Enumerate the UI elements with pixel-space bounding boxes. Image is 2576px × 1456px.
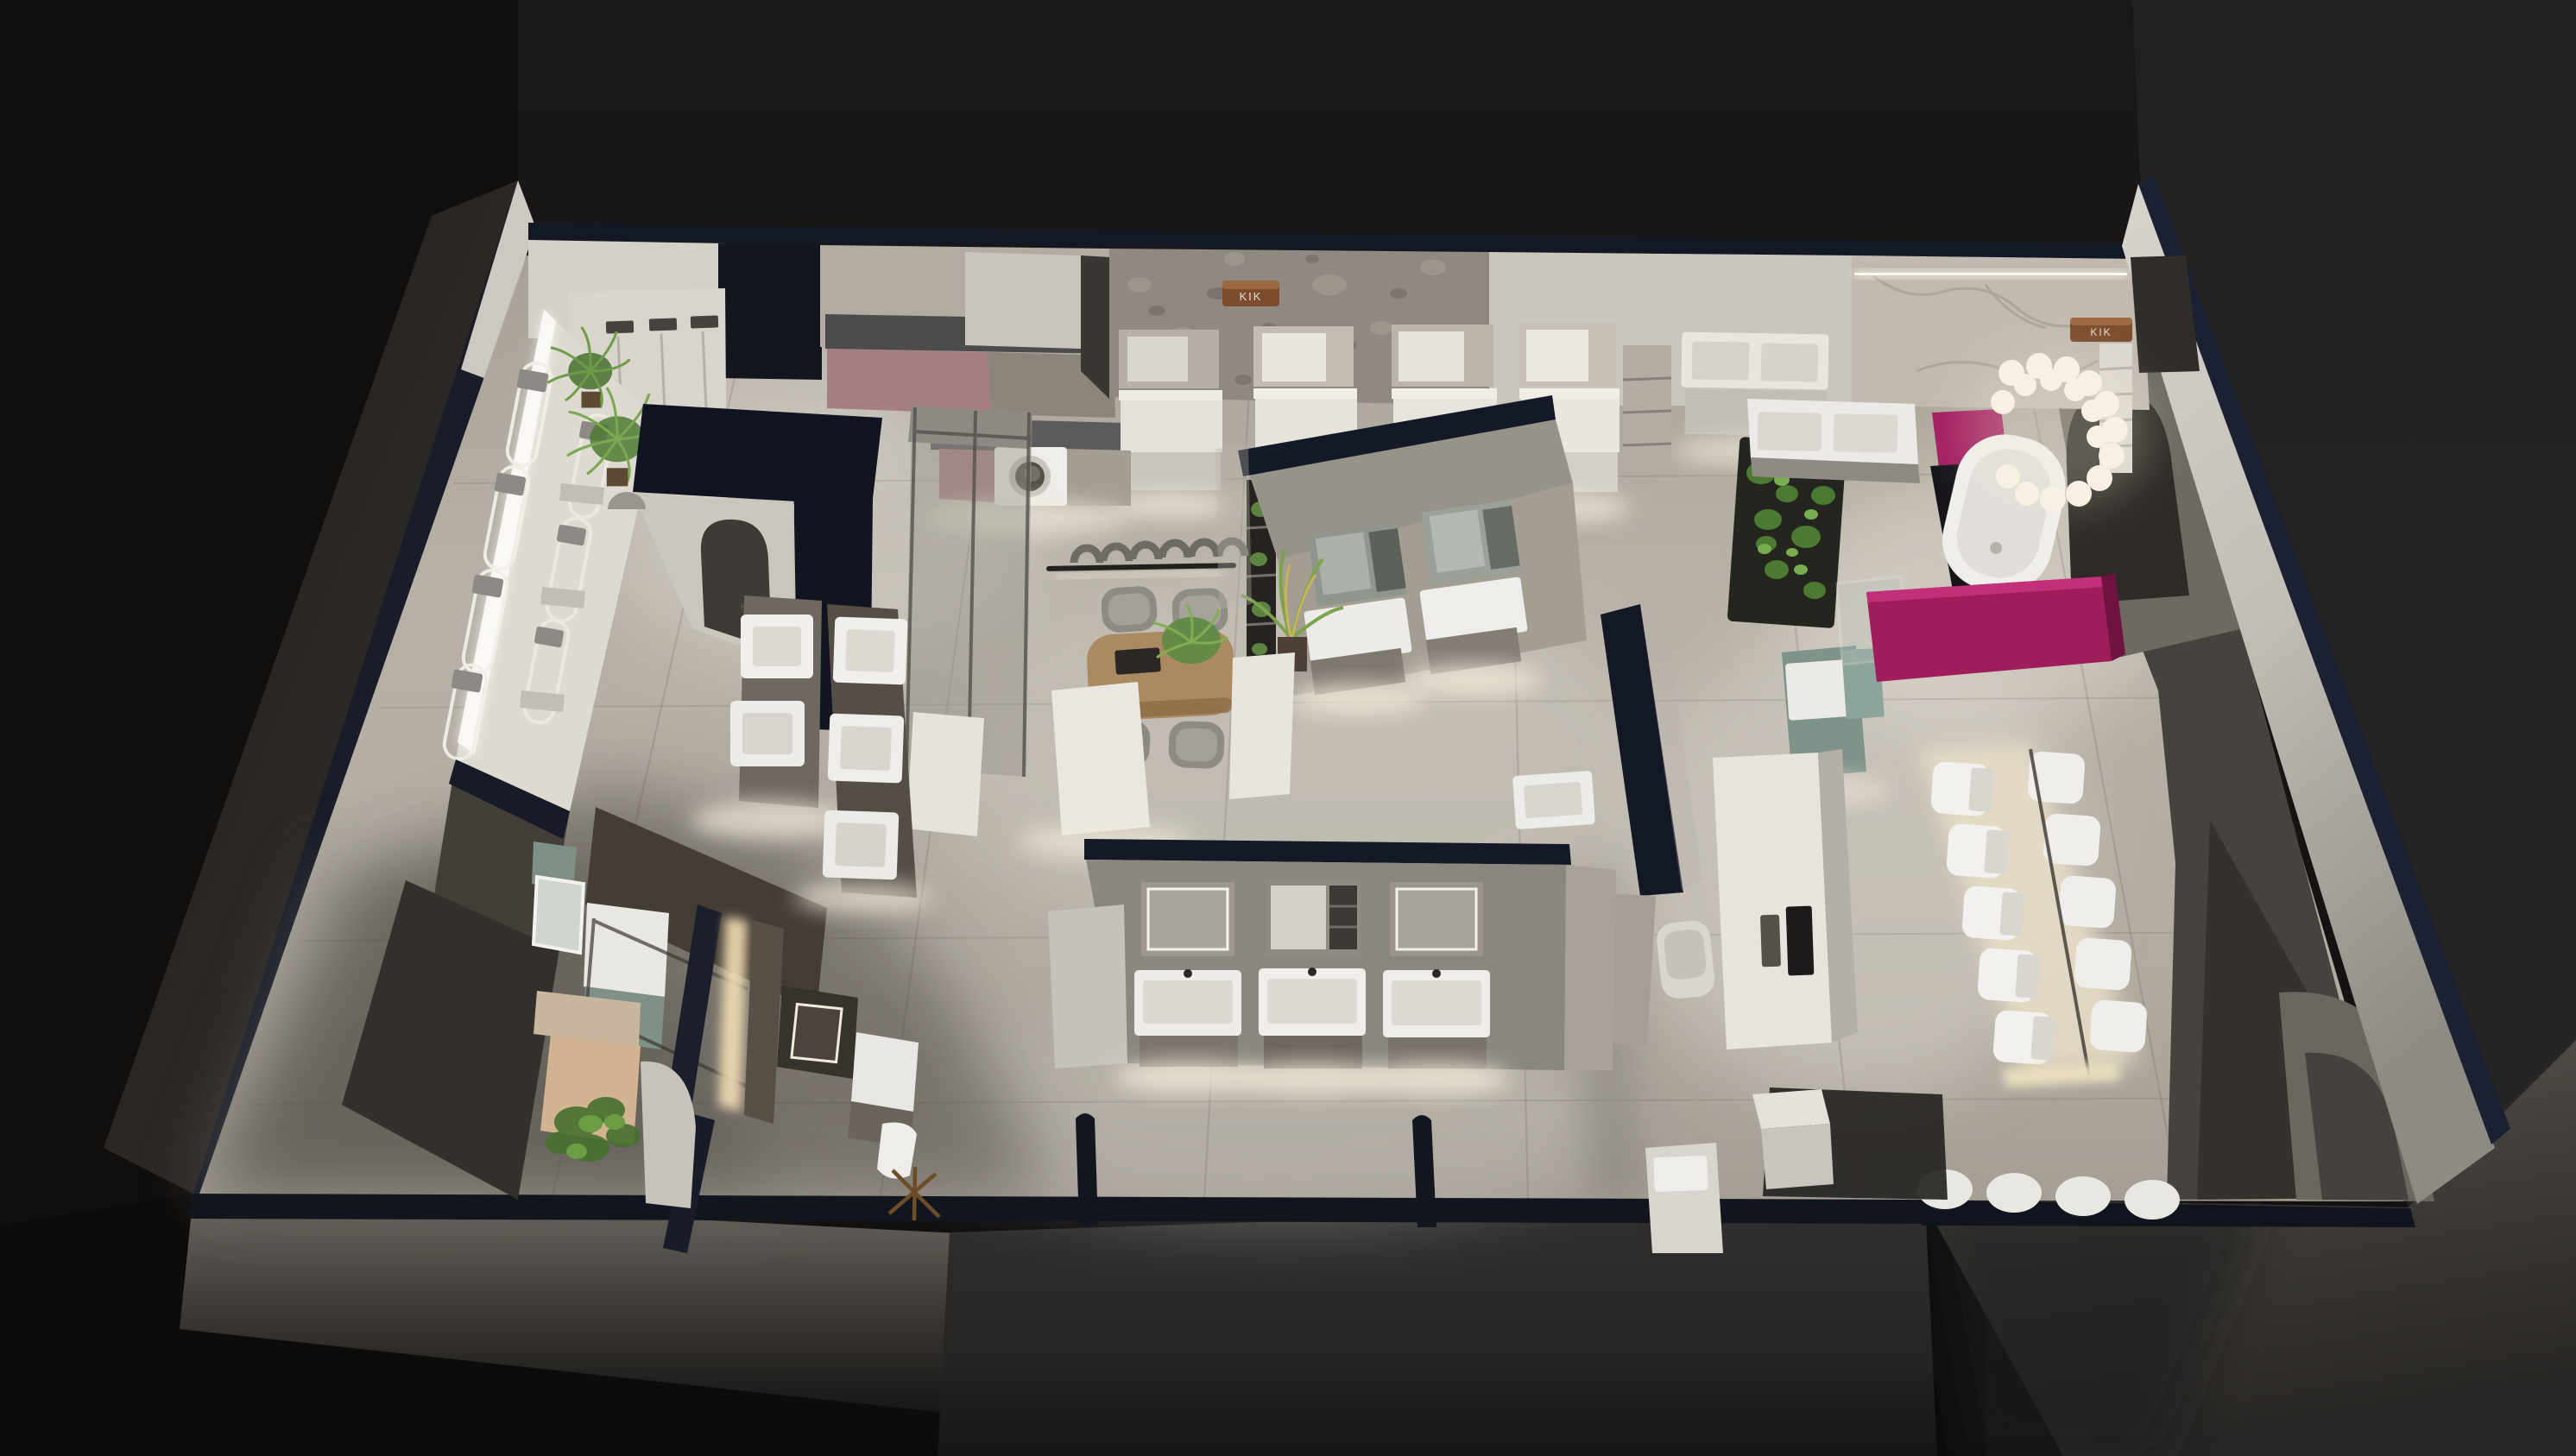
- svg-text:KIK: KIK: [1240, 290, 1263, 303]
- svg-text:KIK: KIK: [2090, 326, 2112, 338]
